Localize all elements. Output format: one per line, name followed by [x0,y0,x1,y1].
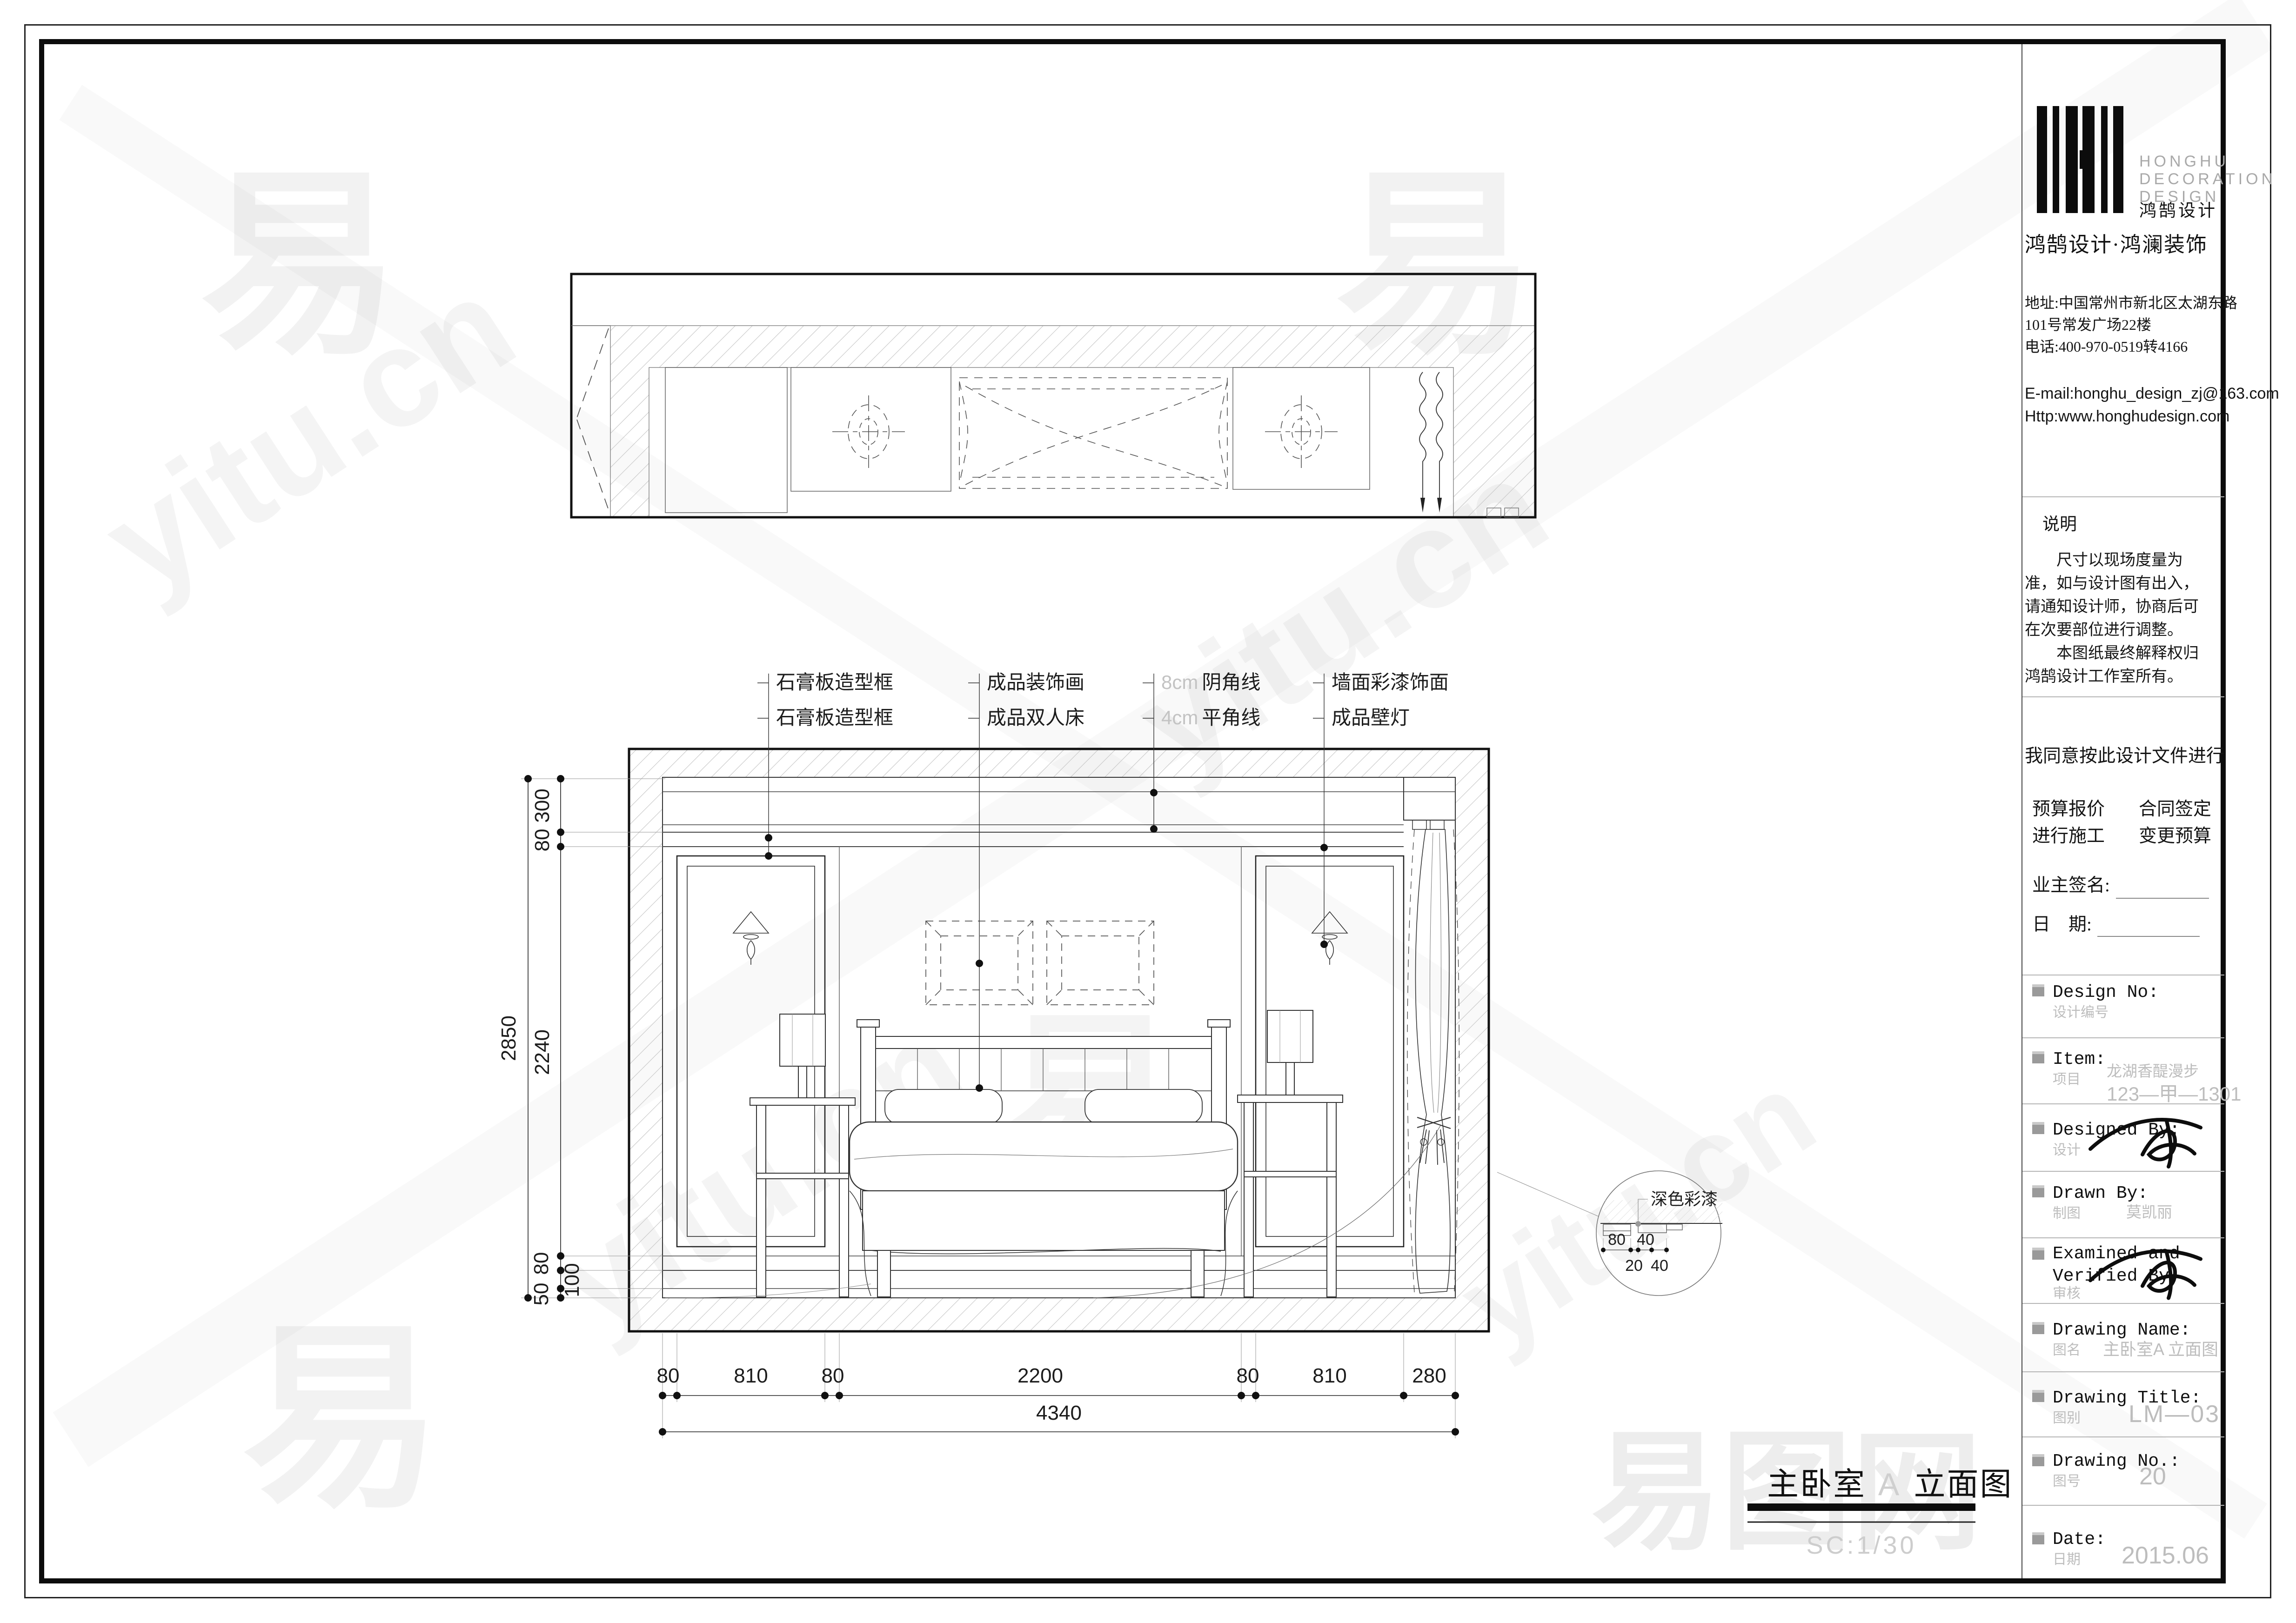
title-rest: 立面图 [1914,1467,2013,1502]
ceiling-lamp-icon [1265,395,1338,468]
drawing-sheet: yitu.cn yitu.cn yitu.cn yitu.cn 易 易 易 易 … [0,0,2296,1623]
dim-label: 810 [1312,1364,1346,1387]
section-divider [2022,696,2224,697]
title-main: 主卧室 [1767,1467,1866,1502]
curtain-plan-icon [1419,372,1443,513]
notes-paragraph: 本图纸最终解释权归鸿鹄设计工作室所有。 [2025,642,2214,688]
dim-label: 2850 [497,1015,520,1061]
section-divider [2022,1371,2224,1372]
company-address: 地址:中国常州市新北区太湖东路 101号常发广场22楼 电话:400-970-0… [2025,292,2237,358]
callout-prefix: 8cm [1161,671,1198,693]
notes-paragraph: 尺寸以现场度量为准，如与设计图有出入，请通知设计师，协商后可在次要部位进行调整。 [2025,549,2214,642]
field-drawing-no-cn: 图号 [2053,1473,2081,1490]
callout-text: 8cm阴角线 [1161,671,1260,693]
dim-label: 80 [530,1252,553,1275]
callout-prefix: 4cm [1161,707,1198,728]
decor-painting-frames [926,921,1154,1005]
dim-label: 50 [530,1283,553,1306]
title-underline-thick [1747,1503,1975,1511]
detail-dim: 20 [1625,1257,1643,1275]
company-brand-line: 鸿鹄设计·鸿澜装饰 [2025,232,2208,258]
field-drawn-by-cn: 制图 [2053,1205,2081,1222]
field-bullet-icon [2032,984,2044,996]
address-line: 101号常发广场22楼 [2025,314,2237,336]
section-divider [2022,975,2224,975]
dim-label: 80 [657,1364,680,1387]
field-item: Item: [2053,1049,2106,1071]
owner-signature-line [2116,898,2209,899]
ceiling-lamp-icon [832,395,905,468]
nightstand-right [1238,1010,1343,1297]
examiner-signature [2087,1238,2208,1303]
double-bed [850,1020,1238,1297]
callout-text: 4cm平角线 [1161,707,1260,728]
section-divider [2022,1436,2224,1437]
field-bullet-icon [2032,1051,2044,1063]
dim-label: 80 [822,1364,844,1387]
website-line: Http:www.honghudesign.com [2025,405,2279,428]
dim-label: 810 [734,1364,768,1387]
field-date: Date: [2053,1529,2106,1551]
callout-text: 墙面彩漆饰面 [1332,671,1449,693]
section-divider [2022,1103,2224,1104]
field-bullet-icon [2032,1390,2044,1402]
wall-sconce-icon [733,912,769,965]
field-drawing-title-cn: 图别 [2053,1409,2081,1427]
ceiling-trims [663,792,1455,847]
field-drawn-by: Drawn By: [2053,1182,2148,1205]
scale-label: SC:1/30 [1806,1531,1916,1559]
field-design-no: Design No: [2053,982,2159,1004]
detail-label: 深色彩漆 [1651,1189,1718,1209]
field-drawing-name-cn: 图名 [2053,1342,2081,1359]
section-divider [2022,1303,2224,1304]
field-bullet-icon [2032,1322,2044,1334]
dim-label: 100 [561,1263,583,1297]
agreement-line: 我同意按此设计文件进行 [2025,745,2224,768]
section-divider [2022,496,2224,497]
field-item-cn: 项目 [2053,1071,2081,1089]
door-swing [577,328,609,510]
field-bullet-icon [2032,1248,2044,1260]
plan-recess-left [791,367,951,491]
plan-view [571,274,1535,517]
title-letter: A [1878,1467,1900,1502]
field-date-cn: 日期 [2053,1551,2081,1569]
elevation-view [629,674,1489,1331]
date-value: 2015.06 [2122,1541,2209,1571]
curtain-box [1404,777,1455,829]
drawing-name-value: 主卧室A 立面图 [2103,1339,2218,1360]
date-sign-label: 日 期: [2032,914,2092,936]
field-designed-by-cn: 设计 [2053,1142,2081,1159]
field-bullet-icon [2032,1185,2044,1197]
canopy-dashed-decor [959,378,1227,488]
callout-text: 成品装饰画 [987,671,1084,693]
field-bullet-icon [2032,1532,2044,1544]
wall-sconce-icon [1312,912,1347,965]
callout-text: 石膏板造型框 [776,671,893,693]
drawing-title-value: LM—03 [2129,1399,2220,1429]
address-line: 地址:中国常州市新北区太湖东路 [2025,292,2237,314]
field-design-no-cn: 设计编号 [2053,1004,2109,1022]
section-divider [2022,1505,2224,1506]
agreement-opt4: 变更预算 [2139,825,2211,848]
field-bullet-icon [2032,1454,2044,1466]
callout-text: 石膏板造型框 [776,707,893,728]
dim-label: 80 [531,829,554,852]
item-value: 龙湖香醍漫步 [2107,1062,2199,1081]
detail-dim: 40 [1637,1231,1654,1249]
detail-circle: 80 40 20 40 深色彩漆 [1497,1171,1722,1296]
detail-dim: 40 [1651,1257,1668,1275]
callout-labels: 石膏板造型框 石膏板造型框 成品装饰画 成品双人床 8cm阴角线 4cm平角线 … [776,671,1449,728]
designer-signature [2087,1108,2208,1171]
plan-niche [665,367,787,513]
item-number: 123—甲—1301 [2107,1082,2242,1107]
dim-label: 280 [1412,1364,1446,1387]
company-name-en: HONGHU DECORATION DESIGN [2139,153,2276,206]
dim-label: 2240 [531,1029,554,1075]
page-title: 主卧室 A 立面图 [1767,1467,2013,1502]
drawing-title: 主卧室 A 立面图 SC:1/30 [1747,1467,2013,1559]
callout-leaders [757,674,1328,1092]
callout-text: 平角线 [1202,707,1260,728]
email-line: E-mail:honghu_design_zj@163.com [2025,382,2279,405]
agreement-opt1: 预算报价 [2032,798,2105,821]
callout-text: 成品壁灯 [1332,707,1410,728]
plan-wall-hatch [610,326,1535,517]
company-contact: E-mail:honghu_design_zj@163.com Http:www… [2025,382,2279,428]
field-examined-cn: 审核 [2053,1285,2081,1302]
dim-label: 300 [531,788,554,822]
agreement-opt3: 进行施工 [2032,825,2105,848]
date-signature-line [2097,936,2200,937]
cad-drawing: 石膏板造型框 石膏板造型框 成品装饰画 成品双人床 8cm阴角线 4cm平角线 … [0,0,2296,1623]
phone-line: 电话:400-970-0519转4166 [2025,336,2237,358]
field-bullet-icon [2032,1122,2044,1134]
owner-sign-label: 业主签名: [2032,875,2110,897]
callout-text: 成品双人床 [987,707,1084,728]
company-logo-icon [2037,106,2130,218]
company-name-en-line: DECORATION [2139,170,2276,188]
dim-label: 2200 [1017,1364,1063,1387]
dim-label: 80 [1237,1364,1259,1387]
callout-text: 阴角线 [1202,671,1260,693]
dim-total-label: 4340 [1036,1402,1082,1424]
section-divider [2022,1037,2224,1038]
notes-body: 尺寸以现场度量为准，如与设计图有出入，请通知设计师，协商后可在次要部位进行调整。… [2025,549,2214,688]
company-name-cn: 鸿鹄设计 [2139,200,2217,221]
dimension-bottom: 80 810 80 2200 80 810 280 4340 [657,1333,1459,1438]
agreement-opt2: 合同签定 [2139,798,2211,821]
plan-outline [571,274,1535,517]
section-divider [2022,1171,2224,1172]
notes-heading: 说明 [2042,514,2077,535]
detail-dim: 80 [1608,1231,1626,1249]
drawn-by-value: 莫凯丽 [2126,1202,2172,1222]
drawing-no-value: 20 [2139,1462,2166,1492]
company-name-en-line: HONGHU [2139,153,2276,170]
field-drawing-name: Drawing Name: [2053,1319,2190,1342]
